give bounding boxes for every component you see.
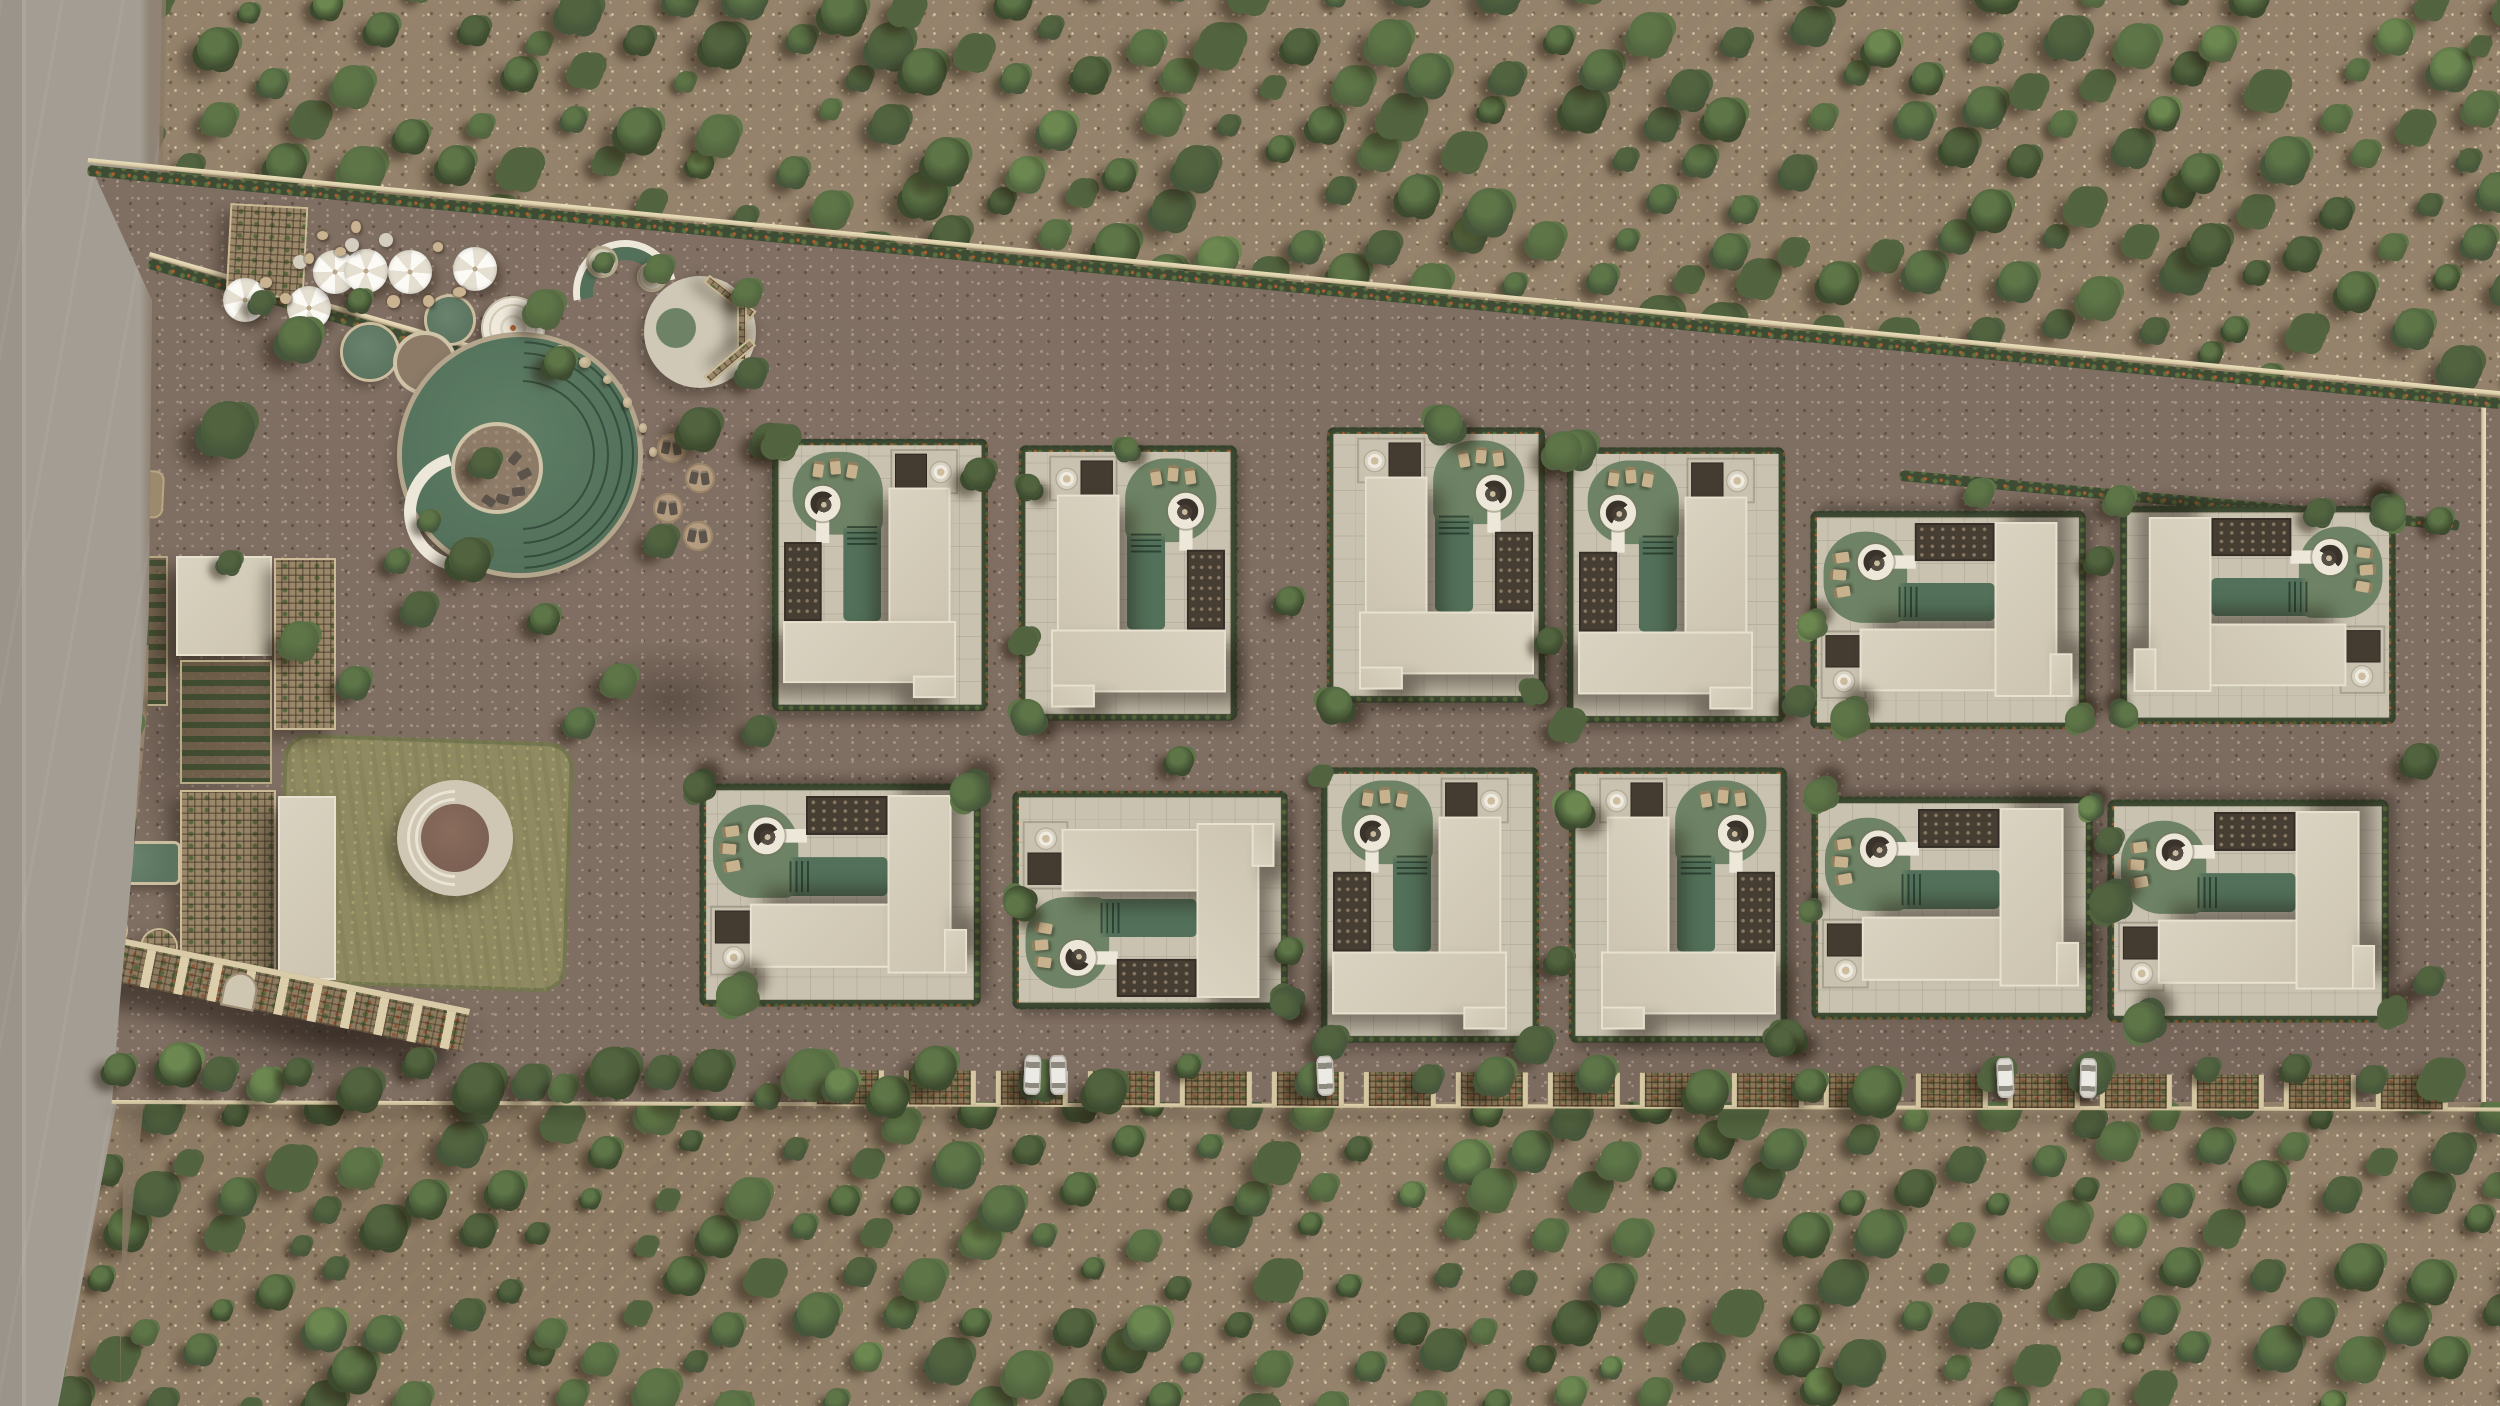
sun-lounger [1032, 939, 1049, 951]
villa-roof-main [2149, 517, 2212, 692]
olive-tree [2412, 1171, 2453, 1212]
parked-car [1996, 1058, 2015, 1099]
olive-tree [1740, 258, 1779, 297]
sun-lounger [668, 501, 678, 516]
olive-tree [2435, 264, 2460, 289]
olive-tree [2388, 1302, 2429, 1343]
villa-courtyard [1495, 532, 1533, 612]
villa-roof-main [1995, 522, 2058, 697]
olive-tree [1152, 189, 1193, 230]
olive-tree [1615, 147, 1639, 171]
olive-tree [1615, 1218, 1652, 1255]
olive-tree [1797, 611, 1826, 640]
olive-tree [2306, 498, 2334, 526]
olive-tree [133, 1319, 158, 1344]
villa-roof-wing [1365, 477, 1428, 616]
villa-roof-main [1359, 612, 1534, 675]
olive-tree [2170, 0, 2191, 4]
olive-tree [1979, 0, 2023, 11]
olive-tree [788, 24, 817, 53]
villa-pool [1079, 899, 1197, 937]
spiral-lounge [1060, 940, 1096, 976]
jacuzzi-tub [724, 947, 744, 967]
jacuzzi-deck [1691, 462, 1723, 498]
parked-car [1023, 1055, 1041, 1096]
olive-tree [2380, 233, 2406, 259]
olive-tree [915, 1045, 957, 1087]
olive-tree [285, 1057, 312, 1084]
jacuzzi-tub [1057, 469, 1077, 489]
olive-tree [460, 15, 490, 45]
olive-tree [1858, 1209, 1904, 1255]
olive-tree [315, 1196, 341, 1222]
olive-tree [2323, 104, 2350, 131]
olive-tree [1641, 1377, 1672, 1406]
villa-roof-wing [888, 488, 950, 625]
olive-tree [1731, 195, 1758, 222]
olive-tree [558, 0, 603, 33]
olive-tree [1069, 178, 1097, 206]
olive-tree [1993, 1386, 2028, 1406]
olive-tree [1256, 1350, 1291, 1385]
olive-tree [500, 147, 542, 189]
olive-tree [2223, 316, 2248, 341]
olive-tree [2399, 109, 2434, 144]
olive-tree [1276, 586, 1304, 614]
olive-tree [1946, 1355, 1970, 1379]
olive-tree [2281, 1132, 2308, 1159]
olive-tree [1491, 61, 1524, 94]
villa-pool [2175, 873, 2295, 912]
olive-tree [1447, 1207, 1479, 1239]
spiral-lounge [1600, 495, 1636, 531]
olive-tree [1283, 28, 1318, 63]
olive-tree [2086, 546, 2114, 574]
olive-tree [1670, 69, 1711, 110]
olive-tree [527, 1222, 549, 1244]
olive-tree [544, 346, 576, 378]
jacuzzi-deck [715, 911, 752, 944]
sun-lounger [1717, 787, 1729, 804]
olive-tree [2141, 1295, 2178, 1332]
spiral-walk [1729, 848, 1742, 873]
olive-tree [1394, 0, 1436, 5]
olive-tree [793, 1213, 818, 1238]
olive-tree [333, 65, 374, 106]
sun-lounger [698, 529, 708, 544]
villa-roof-main [1197, 823, 1260, 998]
villa-pool [1879, 870, 1999, 909]
island-lounger [517, 466, 534, 481]
olive-tree [1593, 1263, 1635, 1305]
olive-tree [1011, 626, 1039, 654]
jacuzzi-tub [2132, 963, 2152, 983]
olive-tree [854, 1148, 883, 1177]
olive-tree [646, 254, 673, 281]
olive-tree [2089, 883, 2130, 924]
olive-tree [2045, 309, 2073, 337]
olive-tree [1477, 1057, 1515, 1095]
folded-parasol [345, 238, 359, 252]
sun-lounger [1379, 787, 1391, 804]
olive-tree [1649, 184, 1677, 212]
olive-tree [2117, 23, 2160, 66]
olive-tree [1555, 790, 1592, 827]
olive-tree [208, 1214, 243, 1249]
spiral-lounge [1858, 544, 1894, 580]
olive-tree [1146, 97, 1183, 134]
jacuzzi-deck [2123, 927, 2160, 960]
olive-tree [1583, 49, 1623, 89]
olive-tree [159, 1042, 202, 1085]
olive-tree [687, 150, 714, 177]
olive-tree [1838, 1339, 1883, 1384]
olive-tree [325, 1256, 349, 1280]
olive-tree [1928, 1263, 1948, 1283]
olive-tree [797, 1292, 840, 1335]
olive-tree [2174, 51, 2207, 84]
olive-tree [2369, 1148, 2396, 1175]
spiral-walk [782, 829, 807, 843]
olive-tree [1437, 1263, 1460, 1286]
olive-tree [821, 0, 866, 33]
villa-roof-wing [1439, 817, 1502, 956]
olive-tree [1941, 219, 1975, 253]
olive-tree [936, 1141, 981, 1186]
olive-tree [1512, 1270, 1536, 1294]
jacuzzi-deck [1081, 460, 1113, 496]
olive-tree [1105, 158, 1136, 189]
olive-tree [2458, 148, 2481, 171]
villa-plot-B4 [1569, 767, 1788, 1043]
olive-tree [1232, 0, 1271, 13]
site-plan-canvas [0, 0, 2500, 1406]
spiral-lounge [748, 817, 785, 854]
olive-tree [1793, 1304, 1820, 1331]
olive-tree [2233, 0, 2270, 15]
sun-lounger [719, 843, 736, 855]
villa-roof-step [2056, 942, 2079, 987]
olive-tree [1424, 404, 1463, 443]
olive-tree [1685, 1342, 1723, 1380]
olive-tree [756, 1083, 781, 1108]
spiral-lounge [805, 486, 841, 522]
sun-lounger [812, 461, 824, 478]
olive-tree [1557, 1376, 1587, 1406]
olive-tree [747, 1258, 785, 1296]
olive-tree [2035, 1145, 2065, 1175]
olive-tree [463, 1213, 496, 1246]
jacuzzi-tub [1365, 451, 1385, 471]
sun-lounger [661, 439, 672, 454]
olive-tree [1005, 1350, 1050, 1395]
olive-tree [594, 146, 623, 175]
olive-tree [1954, 1302, 1998, 1346]
olive-tree [2430, 47, 2472, 89]
olive-tree [203, 1056, 236, 1089]
villa-courtyard [1117, 959, 1197, 997]
olive-tree [2070, 1263, 2115, 1308]
sun-lounger [1832, 551, 1849, 564]
olive-tree [1781, 154, 1816, 189]
villa-roof-wing [1057, 495, 1120, 634]
olive-tree [1949, 1146, 1984, 1181]
villa-roof-step [1359, 667, 1403, 690]
sun-lounger [2130, 841, 2148, 854]
olive-tree [712, 1312, 745, 1345]
olive-tree [1713, 233, 1749, 269]
spiral-walk [816, 519, 829, 543]
olive-tree [2427, 507, 2452, 532]
olive-tree [1368, 230, 1400, 262]
olive-tree [2048, 15, 2091, 58]
olive-tree [332, 1346, 377, 1391]
villa-plot-B1 [699, 783, 980, 1006]
sun-lounger [1167, 465, 1179, 482]
olive-tree [2359, 1065, 2387, 1093]
olive-tree [405, 1047, 435, 1077]
olive-tree [714, 1390, 752, 1406]
olive-tree [2440, 345, 2483, 388]
olive-tree [1211, 1206, 1250, 1245]
olive-tree [626, 1300, 651, 1325]
boulder [579, 357, 591, 368]
sun-lounger [1361, 789, 1374, 806]
villa-plot-T5 [1810, 511, 2086, 730]
olive-tree [785, 1137, 808, 1160]
olive-tree [1589, 263, 1619, 293]
olive-tree [313, 0, 343, 19]
olive-tree [1535, 1218, 1567, 1250]
villa-roof-wing [2208, 624, 2347, 687]
sun-lounger [1625, 467, 1637, 484]
olive-tree [693, 1048, 733, 1088]
boulder [623, 397, 632, 408]
sun-lounger [700, 471, 710, 486]
villa-courtyard [784, 542, 822, 621]
olive-tree [1199, 1134, 1221, 1156]
olive-tree [469, 113, 494, 138]
sun-lounger [687, 527, 698, 542]
olive-tree [339, 666, 371, 698]
olive-tree [831, 1185, 860, 1214]
olive-tree [550, 1073, 578, 1101]
sun-lounger [1834, 838, 1852, 851]
olive-tree [729, 1177, 770, 1218]
pool-lane-steps [2288, 582, 2307, 612]
olive-tree [1198, 22, 1243, 67]
olive-tree [1601, 1356, 1623, 1378]
olive-tree [2258, 1325, 2303, 1370]
olive-tree [779, 156, 810, 187]
jacuzzi-tub [1727, 471, 1747, 491]
jacuzzi-deck [1827, 924, 1864, 957]
sun-lounger [830, 458, 842, 475]
olive-tree [1485, 1389, 1511, 1406]
courtyard-garden [180, 660, 272, 784]
olive-tree [149, 1387, 177, 1406]
olive-tree [2010, 144, 2042, 176]
olive-tree [869, 1075, 909, 1115]
spiral-lounge [1860, 830, 1897, 867]
olive-tree [581, 1188, 601, 1208]
olive-tree [1039, 110, 1077, 148]
olive-tree [1574, 0, 1607, 2]
olive-tree [176, 1149, 202, 1175]
olive-tree [1219, 114, 1240, 135]
olive-tree [1411, 1390, 1445, 1406]
olive-tree [1310, 764, 1332, 786]
villa-courtyard [2214, 812, 2295, 851]
olive-tree [2419, 193, 2442, 216]
olive-tree [1685, 144, 1717, 176]
olive-tree [1716, 1289, 1761, 1334]
olive-tree [2065, 705, 2093, 733]
olive-tree [1804, 1367, 1842, 1405]
olive-tree [949, 772, 988, 811]
olive-tree [1073, 56, 1109, 92]
spiral-lounge [1168, 493, 1204, 529]
olive-tree [2428, 1336, 2468, 1376]
villa-pool [1677, 834, 1715, 952]
olive-tree [1398, 174, 1440, 216]
olive-tree [1822, 1259, 1866, 1303]
olive-tree [1033, 1223, 1056, 1246]
olive-tree [1016, 474, 1041, 499]
villa-plot-T4 [1567, 447, 1786, 723]
cafe-seat [351, 221, 361, 233]
villa-roof-step [2050, 653, 2073, 697]
villa-pool [2211, 578, 2329, 616]
olive-tree [2493, 271, 2500, 306]
villa-roof-wing [1685, 497, 1748, 636]
olive-tree [2496, 0, 2500, 26]
cafe-seat [305, 253, 314, 264]
olive-tree [2353, 139, 2380, 166]
olive-tree [1063, 1172, 1096, 1205]
olive-tree [2378, 18, 2413, 53]
cafe-seat [260, 277, 272, 288]
olive-tree [1654, 1167, 1676, 1189]
olive-tree [2115, 128, 2153, 166]
olive-tree [1685, 1069, 1729, 1113]
olive-tree [2347, 58, 2369, 80]
olive-tree [250, 1066, 284, 1100]
olive-tree [2485, 1172, 2500, 1197]
parked-car [1316, 1055, 1335, 1096]
olive-tree [2181, 153, 2220, 192]
olive-tree [1169, 1188, 1191, 1210]
villa-pool [1877, 583, 1995, 621]
olive-tree [1545, 431, 1583, 469]
pergola-arch-door [220, 970, 260, 1012]
olive-tree [293, 100, 330, 137]
olive-tree [1258, 1258, 1300, 1300]
olive-tree [825, 1388, 849, 1406]
olive-tree [1787, 1212, 1830, 1255]
olive-tree [528, 31, 552, 55]
olive-tree [636, 1368, 680, 1406]
villa-roof-main [1578, 632, 1753, 695]
olive-tree [1397, 1312, 1428, 1343]
olive-tree [2240, 194, 2273, 227]
olive-tree [203, 102, 236, 135]
olive-tree [1167, 1276, 1190, 1299]
olive-tree [1335, 65, 1374, 104]
cafe-seat [433, 242, 443, 252]
olive-tree [1676, 265, 1703, 292]
olive-tree [2045, 224, 2069, 248]
island-lounger [512, 486, 528, 497]
olive-tree [2178, 1331, 2209, 1362]
sun-lounger [2127, 859, 2144, 871]
olive-tree [2050, 1200, 2092, 1242]
olive-tree [1529, 1345, 1555, 1371]
villa-roof-wing [1862, 917, 2004, 981]
olive-tree [2286, 236, 2320, 270]
olive-tree [1819, 261, 1859, 301]
olive-tree [2075, 1177, 2098, 1200]
spiral-walk [1891, 555, 1916, 568]
jacuzzi-tub [2352, 666, 2372, 686]
olive-tree [281, 621, 318, 658]
olive-tree [1803, 779, 1836, 812]
olive-tree [221, 1177, 257, 1213]
olive-tree [2339, 1336, 2383, 1380]
olive-tree [1127, 1305, 1171, 1349]
plunge-pool [343, 325, 397, 379]
olive-tree [95, 1336, 138, 1379]
olive-tree [1227, 1312, 1252, 1337]
olive-tree [1445, 131, 1485, 171]
olive-tree [1163, 58, 1196, 91]
olive-tree [2200, 341, 2223, 364]
olive-tree [2083, 69, 2114, 100]
olive-tree [1723, 27, 1752, 56]
olive-tree [1528, 221, 1565, 258]
olive-tree [499, 1279, 522, 1302]
jacuzzi-tub [1481, 791, 1501, 811]
olive-tree [679, 407, 721, 449]
olive-tree [902, 48, 947, 93]
olive-tree [240, 1397, 261, 1406]
olive-tree [699, 114, 740, 155]
villa-pool [1127, 512, 1165, 630]
olive-tree [1262, 75, 1285, 98]
olive-tree [1966, 478, 1994, 506]
olive-tree [1400, 1181, 1424, 1205]
olive-tree [590, 1046, 640, 1096]
olive-tree [1237, 1181, 1270, 1214]
olive-tree [2435, 1132, 2474, 1171]
olive-tree [1629, 12, 1672, 55]
sun-lounger [722, 825, 740, 838]
sun-lounger [2356, 546, 2373, 559]
olive-tree [1338, 1274, 1360, 1296]
sun-lounger [1492, 449, 1505, 466]
olive-tree [570, 52, 604, 86]
olive-tree [1040, 15, 1063, 38]
olive-tree [886, 1296, 917, 1327]
olive-tree [1002, 63, 1030, 91]
olive-tree [2289, 313, 2328, 352]
spiral-lounge [1354, 815, 1390, 851]
sun-lounger [1734, 789, 1747, 806]
olive-tree [2486, 1294, 2500, 1325]
olive-tree [1846, 60, 1870, 84]
olive-tree [1999, 261, 2038, 300]
villa-roof-main [1332, 952, 1507, 1015]
